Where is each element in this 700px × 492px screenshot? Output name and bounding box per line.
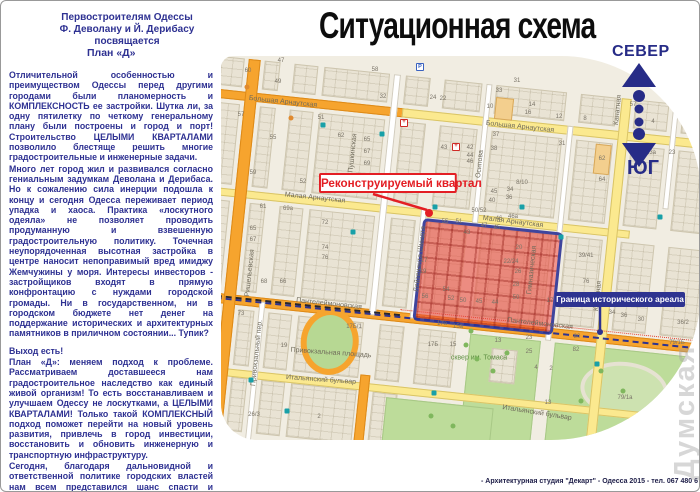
house-number: 76: [322, 255, 329, 261]
street-label: Пантелеймоновская: [296, 297, 362, 311]
leaflet-page: Первостроителям ОдессыФ. Деволану и Й. Д…: [0, 0, 700, 492]
tree-icon: [469, 329, 474, 334]
house-number: 49: [275, 79, 282, 85]
cafe-icon: [245, 85, 250, 90]
house-number: 15а: [453, 324, 463, 330]
house-number: 44: [492, 300, 499, 306]
house-number: 58: [372, 67, 379, 73]
house-number: 47: [278, 58, 285, 64]
house-number: 55: [270, 135, 277, 141]
house-number: 17Б/1: [346, 324, 362, 330]
house-number: 64: [599, 177, 606, 183]
street-label: Ришельевская: [244, 249, 256, 297]
street-label: Малая Арнаутская: [284, 191, 345, 204]
street-label: Пушкинская: [347, 133, 358, 173]
house-number: 19: [420, 269, 427, 275]
house-number: 72: [322, 220, 329, 226]
house-number: 50: [460, 298, 467, 304]
street-label: Привокзальный пер.: [250, 320, 264, 387]
north-south-arrow-icon: [622, 63, 656, 167]
house-number: 31: [514, 78, 521, 84]
house-number: 40: [489, 198, 496, 204]
house-number: 67: [250, 237, 257, 243]
street-label: Пантелеймоновская: [507, 317, 573, 331]
house-number: 33: [496, 88, 503, 94]
house-number: 28: [513, 282, 520, 288]
house-number: 54: [443, 287, 450, 293]
transit-stop-icon: [658, 215, 663, 220]
house-number: 32: [380, 94, 387, 100]
compass: СЕВЕР ЮГ: [609, 43, 679, 191]
house-number: 45: [476, 299, 483, 305]
house-number: 45: [491, 189, 498, 195]
house-number: 17а: [437, 321, 447, 327]
house-number: 10: [487, 104, 494, 110]
house-number: 26: [515, 269, 522, 275]
house-number: 67: [364, 149, 371, 155]
paragraph: План «Д»: меняем подход к проблеме. Расс…: [9, 357, 213, 460]
house-number: 30: [638, 317, 645, 323]
street-label: Итальянский бульвар: [286, 374, 356, 386]
house-number: 68: [261, 279, 268, 285]
house-number: 69: [364, 161, 371, 167]
house-number: 69а: [283, 206, 293, 212]
house-number: 46а: [508, 214, 518, 220]
tree-icon: [579, 399, 584, 404]
house-number: 82: [573, 347, 580, 353]
house-number: 34: [609, 310, 616, 316]
house-number: 50/52: [471, 208, 486, 214]
street-label: Большая Арнаутская: [249, 95, 318, 109]
house-number: 37: [493, 132, 500, 138]
house-number: 79/1а: [617, 395, 632, 401]
street-label: Итальянский бульвар: [502, 404, 572, 422]
tree-icon: [475, 357, 480, 362]
tree-icon: [464, 343, 469, 348]
house-number: 51: [318, 115, 325, 121]
paragraph: Много лет город жил и развивался согласн…: [9, 164, 213, 339]
transit-stop-icon: [432, 391, 437, 396]
house-number: 22/24: [503, 259, 518, 265]
house-number: 52: [448, 296, 455, 302]
house-number: 51: [456, 219, 463, 225]
attribution-line: - Архитектурная студия "Декарт" - Одесса…: [481, 478, 697, 485]
house-number: 56: [422, 294, 429, 300]
house-number: 46: [496, 216, 503, 222]
tree-icon: [505, 351, 510, 356]
house-number: 13: [495, 338, 502, 344]
tree-icon: [599, 369, 604, 374]
parking-icon: P: [416, 63, 424, 71]
paragraph: Сегодня, благодаря дальновидной и ответс…: [9, 461, 213, 492]
house-number: 20: [516, 245, 523, 251]
transit-stop-icon: [285, 409, 290, 414]
transit-stop-icon: [520, 205, 525, 210]
reconstructed-quarter-callout: Реконструируемый квартал: [319, 173, 457, 193]
pharmacy-icon: +: [400, 119, 408, 127]
dumskaya-watermark: Думская: [669, 344, 700, 480]
tree-icon: [429, 414, 434, 419]
house-number: 36/2: [677, 320, 689, 326]
house-number: 8: [583, 116, 586, 122]
house-number: 23: [526, 335, 533, 341]
pharmacy-icon: +: [452, 143, 460, 151]
house-number: 36: [621, 313, 628, 319]
house-number: 73: [238, 311, 245, 317]
transit-stop-icon: [595, 362, 600, 367]
house-number: 2: [549, 366, 552, 372]
cafe-icon: [289, 116, 294, 121]
house-number: 42: [467, 145, 474, 151]
plan-d-label: План «Д»: [87, 47, 135, 59]
house-number: 60: [245, 68, 252, 74]
house-number: 43: [441, 145, 448, 151]
house-number: 12: [556, 114, 563, 120]
house-number: 76: [583, 279, 590, 285]
tree-icon: [621, 389, 626, 394]
house-number: 8/10: [516, 180, 528, 186]
house-number: 43: [464, 230, 471, 236]
house-number: 31: [559, 141, 566, 147]
house-number: 66: [280, 279, 287, 285]
house-number: 34: [507, 187, 514, 193]
transit-stop-icon: [380, 132, 385, 137]
house-number: 65: [364, 137, 371, 143]
dedication-text: Первостроителям ОдессыФ. Деволану и Й. Д…: [41, 12, 213, 47]
transit-stop-icon: [351, 230, 356, 235]
house-number: 19: [281, 343, 288, 349]
house-number: 46: [467, 159, 474, 165]
house-number: 17: [547, 298, 554, 304]
house-number: 45: [494, 225, 501, 231]
house-number: 17: [421, 258, 428, 264]
historic-border-callout: Граница исторического ареала: [555, 292, 685, 307]
compass-south-label: ЮГ: [627, 157, 659, 180]
transit-stop-icon: [433, 205, 438, 210]
house-number: 2: [317, 414, 320, 420]
house-number: 14: [529, 102, 536, 108]
house-number: 65: [250, 226, 257, 232]
tree-icon: [491, 369, 496, 374]
exit-heading: Выход есть!: [9, 346, 213, 356]
page-title: Ситуационная схема: [319, 5, 595, 47]
house-number: 74: [322, 245, 329, 251]
transit-stop-icon: [559, 235, 564, 240]
house-number: 17Б: [428, 342, 439, 348]
house-number: 57: [238, 112, 245, 118]
house-number: 13: [545, 400, 552, 406]
house-number: 22: [440, 96, 447, 102]
house-number: 47: [481, 223, 488, 229]
house-number: 52: [300, 179, 307, 185]
street-label: Осипова: [475, 150, 485, 179]
house-number: 59: [250, 170, 257, 176]
house-number: 50: [513, 295, 520, 301]
house-number: 55: [442, 219, 449, 225]
house-number: 24: [430, 95, 437, 101]
house-number: 62: [599, 156, 606, 162]
house-number: 61: [260, 204, 267, 210]
tree-icon: [451, 424, 456, 429]
house-number: 39/41: [578, 253, 593, 259]
transit-stop-icon: [321, 123, 326, 128]
house-number: 62: [338, 133, 345, 139]
compass-north-label: СЕВЕР: [612, 43, 670, 61]
house-number: 15: [450, 342, 457, 348]
house-number: 26/3: [248, 412, 260, 418]
body-text: Отличительной особенностью и преимуществ…: [9, 70, 213, 492]
transit-stop-icon: [249, 378, 254, 383]
house-number: 36: [506, 195, 513, 201]
house-number: 80: [574, 334, 581, 340]
paragraph: Отличительной особенностью и преимуществ…: [9, 70, 213, 163]
house-number: 25: [526, 349, 533, 355]
house-number: 16: [525, 110, 532, 116]
house-number: 4: [534, 365, 537, 371]
street-label: Гимназическая: [526, 245, 538, 294]
street-label: Привокзальная площадь: [290, 347, 371, 360]
house-number: 38: [491, 146, 498, 152]
